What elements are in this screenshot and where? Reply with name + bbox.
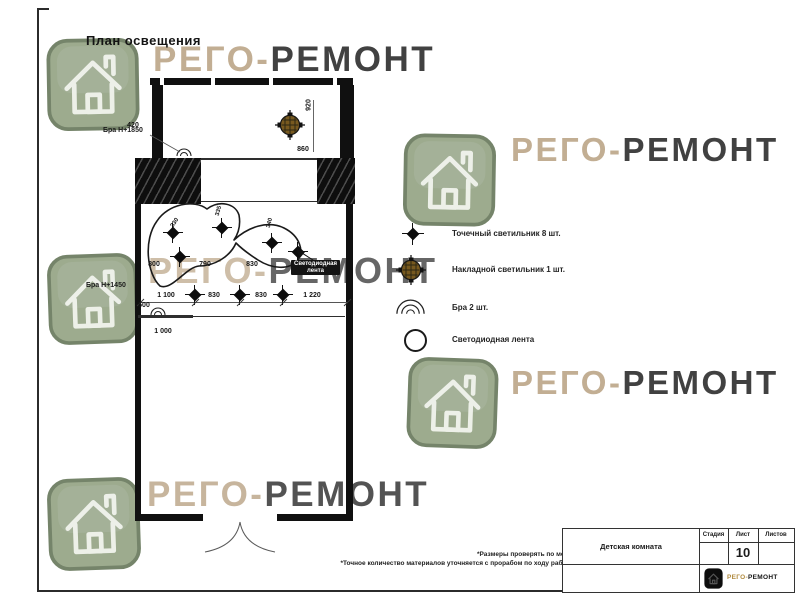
led-callout-line2: лента — [294, 268, 337, 275]
legend-label-led: Светодиодная лента — [452, 335, 534, 344]
legend-label-surface: Накладной светильник 1 шт. — [452, 265, 565, 274]
sconce-leader-line — [148, 133, 184, 155]
callout-arrow — [292, 246, 318, 264]
watermark-brand-text: РЕГО-РЕМОНТ — [511, 364, 779, 402]
dim-830: 830 — [255, 292, 267, 299]
stage-label: Стадия — [699, 532, 728, 538]
legend-label-sconce: Бра 2 шт. — [452, 303, 488, 312]
door-swing — [195, 510, 290, 558]
spot-light-symbol — [212, 218, 232, 238]
brand-first: РЕГО- — [511, 131, 622, 168]
house-icon — [45, 35, 141, 134]
window-mullion-gap — [333, 78, 337, 85]
house-icon — [402, 355, 502, 450]
sconce-symbol — [150, 307, 166, 316]
brand-second: РЕМОНТ — [748, 574, 778, 581]
sheet-number: 10 — [728, 545, 758, 560]
surface-light-symbol — [275, 110, 305, 140]
window-mullion-gap — [211, 78, 215, 85]
dim-1220: 1 220 — [303, 292, 321, 299]
dim-800: 800 — [148, 261, 160, 268]
spot-light-icon — [402, 223, 424, 245]
room-name: Детская комната — [563, 542, 699, 551]
opening-top-line — [201, 159, 317, 160]
note-line-2: *Точное количество материалов уточняется… — [340, 559, 575, 568]
dim-830: 830 — [246, 261, 258, 268]
title-block: Детская комната Стадия Лист Листов 10 РЕ… — [562, 528, 795, 593]
window-mullion-gap — [269, 78, 273, 85]
wall-right-lower — [346, 204, 353, 515]
sheets-label: Листов — [758, 532, 794, 538]
house-icon — [44, 475, 143, 572]
spot-light-symbol — [170, 247, 190, 267]
brand-second: РЕМОНТ — [622, 364, 778, 401]
title-block-divider — [699, 529, 700, 592]
spot-light-symbol — [262, 233, 282, 253]
dim-860: 860 — [297, 146, 309, 153]
dim-500: 500 — [138, 302, 150, 309]
dim-920: 920 — [306, 99, 313, 111]
brand-second: РЕМОНТ — [270, 40, 435, 79]
brand-first: РЕГО- — [511, 364, 622, 401]
wall-right-upper — [340, 85, 354, 160]
sheet-notes: *Размеры проверять по месту *Точное коли… — [340, 550, 575, 568]
dimension-witness-line — [313, 100, 314, 152]
sconce-top-label: Бра Н+1850 — [103, 127, 143, 134]
wall-block-right — [317, 158, 355, 204]
title-block-divider — [563, 564, 794, 565]
wall-top-window — [150, 78, 353, 85]
logo-brand-text: РЕГО-РЕМОНТ — [727, 574, 778, 581]
note-line-1: *Размеры проверять по месту — [340, 550, 575, 559]
surface-light-icon — [396, 255, 426, 285]
wall-bottom-left — [135, 514, 203, 521]
title-block-divider — [699, 542, 794, 543]
dim-1100: 1 100 — [157, 292, 175, 299]
drawing-sheet: РЕГО-РЕМОНТ РЕГО-РЕМОНТ РЕГО-РЕМОНТ РЕГО… — [0, 0, 800, 600]
brand-first: РЕГО- — [727, 574, 748, 581]
house-icon — [397, 132, 502, 228]
dim-790: 790 — [199, 261, 211, 268]
sconce-mid-label: Бра Н+1450 — [86, 282, 126, 289]
frame-left-line — [37, 8, 39, 591]
dim-1000: 1 000 — [154, 328, 172, 335]
watermark-brand-text: РЕГО-РЕМОНТ — [511, 131, 779, 169]
sheet-label: Лист — [728, 532, 758, 538]
led-strip-icon — [404, 329, 427, 352]
dim-830: 830 — [208, 292, 220, 299]
brand-second: РЕМОНТ — [622, 131, 778, 168]
frame-corner-tick — [37, 8, 49, 10]
watermark-brand-text: РЕГО-РЕМОНТ — [147, 475, 429, 515]
legend-label-spot: Точечный светильник 8 шт. — [452, 229, 561, 238]
sconce-icon — [394, 296, 427, 316]
page-title: План освещения — [86, 33, 201, 48]
brand-first: РЕГО- — [147, 475, 264, 514]
window-mullion-gap — [160, 78, 164, 85]
house-icon — [45, 251, 140, 346]
logo-house-icon — [704, 568, 723, 589]
